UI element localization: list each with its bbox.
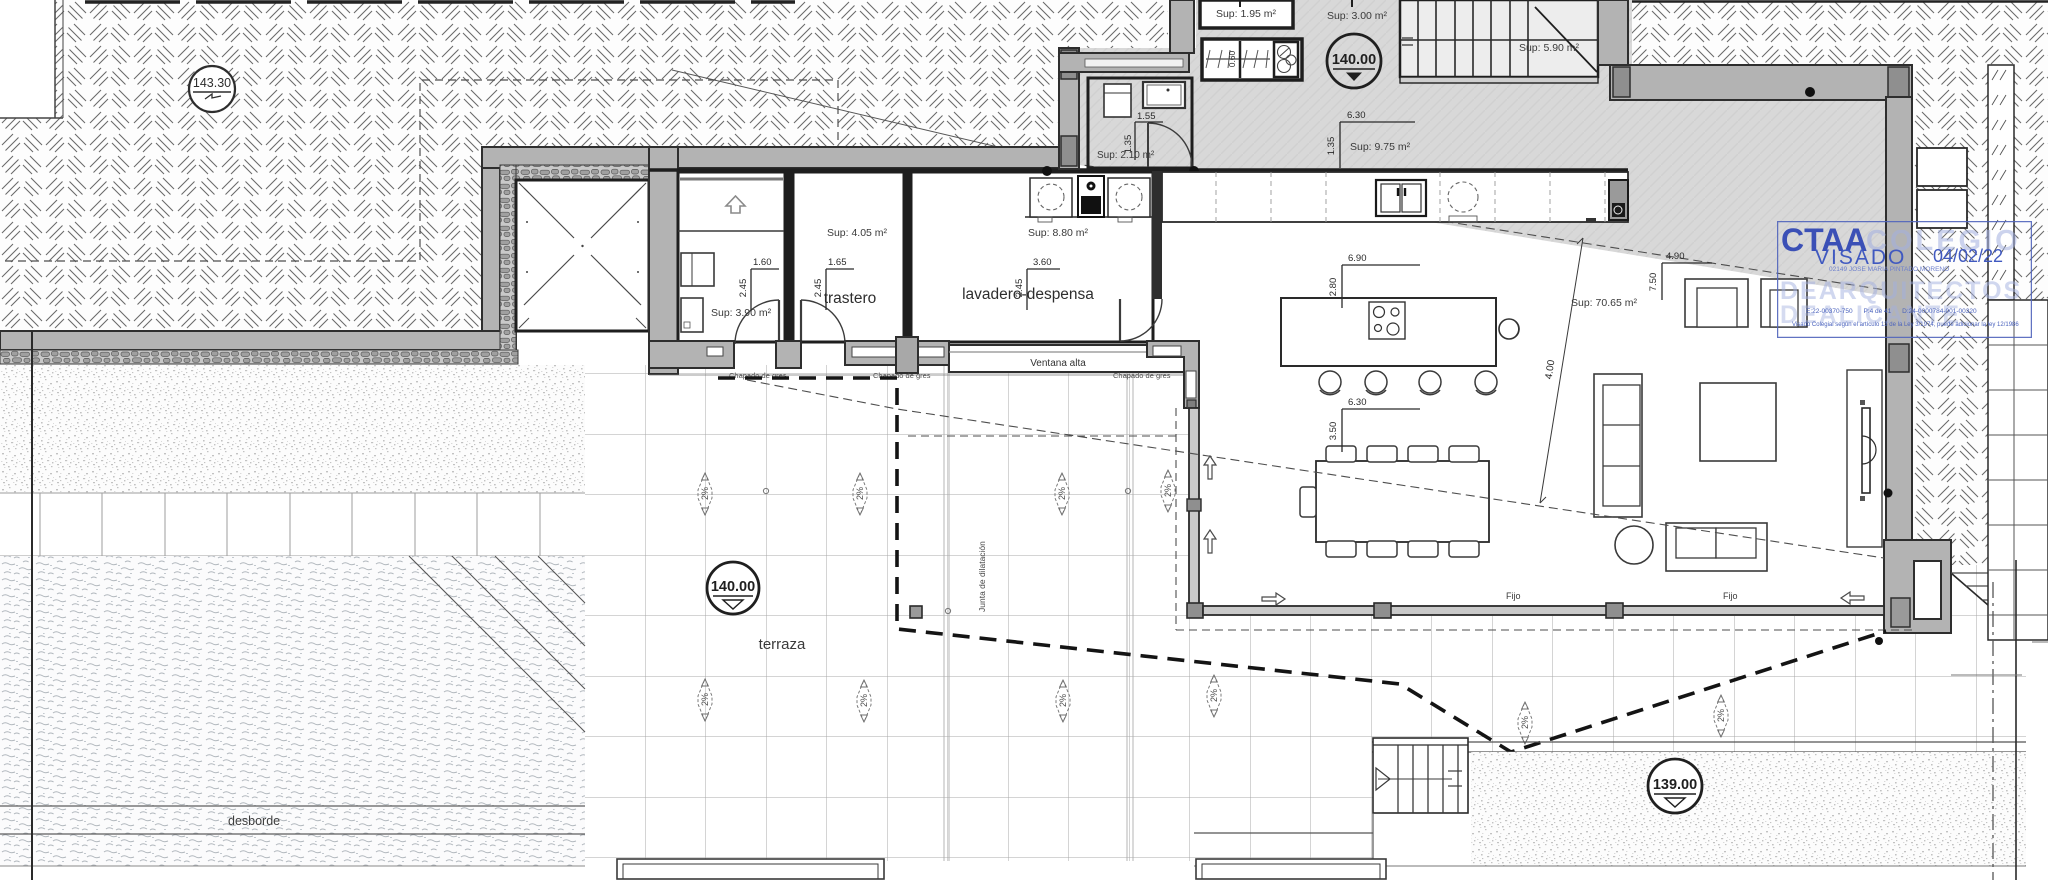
svg-text:6.30: 6.30 — [1348, 397, 1367, 408]
svg-text:1.60: 1.60 — [753, 257, 772, 268]
svg-text:Ventana alta: Ventana alta — [1030, 358, 1086, 369]
svg-text:3.60: 3.60 — [1033, 257, 1052, 268]
svg-text:Fijo: Fijo — [1506, 591, 1521, 601]
svg-text:E:22-00370-750 P:4 de 41: E:22-00370-750 P:4 de 41 D:24-0000784-00… — [1806, 308, 1977, 315]
svg-text:2.45: 2.45 — [813, 279, 824, 298]
svg-text:lavadero-despensa: lavadero-despensa — [962, 286, 1094, 303]
svg-text:Sup: 2.10 m²: Sup: 2.10 m² — [1097, 150, 1155, 161]
svg-text:Sup: 3.90 m²: Sup: 3.90 m² — [711, 307, 772, 319]
svg-text:1.35: 1.35 — [1326, 137, 1337, 156]
svg-text:1.55: 1.55 — [1137, 111, 1156, 122]
svg-text:Sup: 4.05 m²: Sup: 4.05 m² — [827, 227, 888, 239]
svg-text:140.00: 140.00 — [1332, 52, 1376, 68]
svg-text:Sup: 9.75 m²: Sup: 9.75 m² — [1350, 141, 1411, 153]
svg-text:trastero: trastero — [824, 290, 877, 307]
svg-text:4.90: 4.90 — [1666, 251, 1685, 262]
svg-text:Sup: 8.80 m²: Sup: 8.80 m² — [1028, 227, 1089, 239]
svg-text:Junta de dilatación: Junta de dilatación — [977, 541, 987, 612]
svg-text:6.90: 6.90 — [1348, 253, 1367, 264]
svg-text:Fijo: Fijo — [1723, 591, 1738, 601]
svg-text:desborde: desborde — [228, 814, 280, 828]
svg-text:Sup: 5.90 m²: Sup: 5.90 m² — [1519, 42, 1580, 54]
svg-text:2.80: 2.80 — [1328, 278, 1339, 297]
svg-text:7.50: 7.50 — [1648, 273, 1659, 292]
svg-text:3.50: 3.50 — [1328, 422, 1339, 441]
svg-text:02149 JOSE MARIA PINTADO MOREN: 02149 JOSE MARIA PINTADO MORENO — [1829, 266, 1949, 273]
svg-text:0.60: 0.60 — [1227, 50, 1237, 67]
svg-text:6.30: 6.30 — [1347, 110, 1366, 121]
svg-text:Visado Colegial según el artíc: Visado Colegial según el artículo 13 de … — [1792, 322, 2019, 328]
svg-text:Sup: 3.00 m²: Sup: 3.00 m² — [1327, 10, 1388, 22]
svg-text:139.00: 139.00 — [1653, 777, 1697, 793]
svg-text:1.65: 1.65 — [828, 257, 847, 268]
svg-text:2.45: 2.45 — [1014, 279, 1025, 298]
svg-text:2.45: 2.45 — [738, 279, 749, 298]
svg-text:Sup: 1.95 m²: Sup: 1.95 m² — [1216, 8, 1277, 20]
svg-text:Sup: 70.65 m²: Sup: 70.65 m² — [1571, 297, 1637, 309]
svg-text:140.00: 140.00 — [711, 579, 755, 595]
svg-text:Chapado de gres: Chapado de gres — [1113, 371, 1171, 380]
svg-text:04/02/22: 04/02/22 — [1933, 246, 2003, 266]
svg-text:143.30: 143.30 — [193, 76, 231, 90]
svg-text:terraza: terraza — [759, 636, 806, 653]
